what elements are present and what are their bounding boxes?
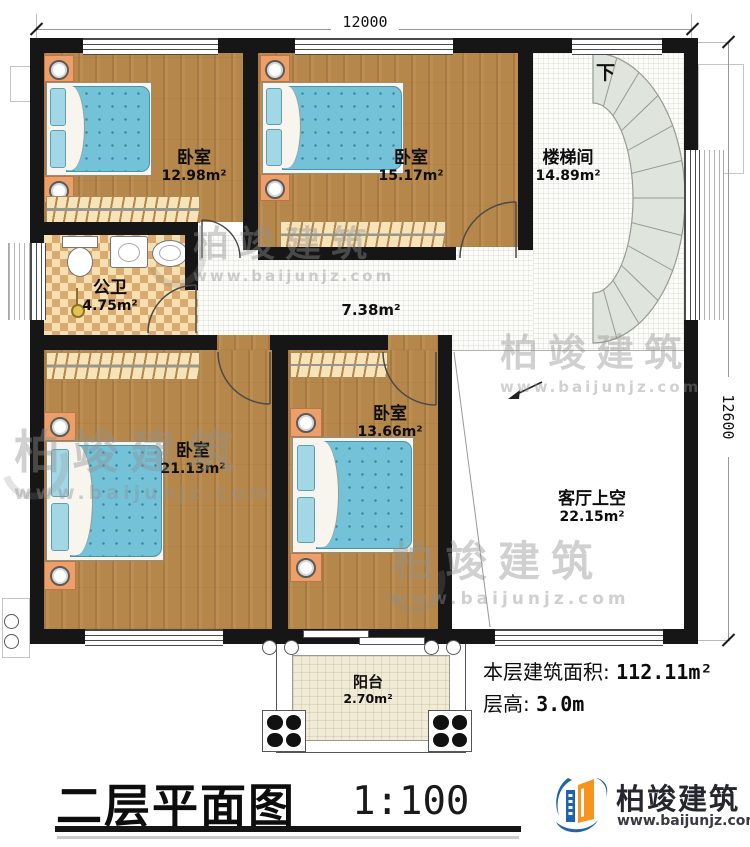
pillow xyxy=(51,503,69,551)
railing-baluster xyxy=(262,640,277,655)
floor-area-value: 112.11m² xyxy=(616,660,712,684)
stairwell-floor xyxy=(533,53,684,350)
room-area: 15.17m² xyxy=(351,168,471,185)
railing-baluster xyxy=(424,640,439,655)
nightstand xyxy=(290,408,322,437)
title-underline xyxy=(55,826,521,832)
room-label-balcony: 阳台 2.70m² xyxy=(308,674,428,706)
lamp-icon xyxy=(49,60,69,80)
extension-line xyxy=(691,14,692,38)
company-website: www.baijunjz.com xyxy=(617,813,750,829)
window xyxy=(684,150,700,320)
room-label-bedroom-bm: 卧室 13.66m² xyxy=(330,404,450,441)
right-dimension-label: 12600 xyxy=(719,377,737,457)
room-area: 7.38m² xyxy=(341,302,401,320)
column-icon xyxy=(4,614,19,629)
window xyxy=(295,38,453,55)
washer-drum-icon xyxy=(118,243,140,262)
pillow xyxy=(266,129,282,166)
room-label-corridor: 7.38m² xyxy=(341,302,401,320)
watermark: 柏竣建筑 www.baijunjz.com xyxy=(500,330,701,396)
room-name: 卧室 xyxy=(351,148,471,168)
top-dimension-label: 12000 xyxy=(331,13,399,31)
lamp-icon xyxy=(265,60,285,80)
pillow xyxy=(266,88,282,125)
drawing-scale: 1:100 xyxy=(352,779,469,824)
nightstand xyxy=(260,174,290,201)
bay-window xyxy=(698,150,724,320)
nightstand xyxy=(44,55,74,82)
railing-post xyxy=(262,710,306,752)
floor-height-note: 层高: 3.0m xyxy=(483,688,584,717)
title-underline-thin xyxy=(57,836,519,839)
lamp-icon xyxy=(296,558,316,578)
doorway-floor xyxy=(217,335,272,350)
column-icon xyxy=(4,634,19,649)
floor-plan: 12000 12600 下 xyxy=(0,0,750,847)
doorway-floor xyxy=(386,335,438,350)
room-area: 14.89m² xyxy=(508,168,628,185)
nightstand xyxy=(260,55,290,82)
room-name: 卧室 xyxy=(134,148,254,168)
watermark-company: 柏竣建筑 xyxy=(500,330,701,378)
room-area: 12.98m² xyxy=(134,168,254,185)
floor-height-label: 层高: xyxy=(483,692,530,716)
toilet-icon xyxy=(67,247,93,277)
room-label-bathroom: 公卫 4.75m² xyxy=(50,278,170,315)
room-name: 阳台 xyxy=(308,674,428,692)
room-name: 卧室 xyxy=(330,404,450,424)
watermark-company: 柏竣建筑 xyxy=(193,222,394,267)
bay-window xyxy=(8,243,32,320)
lamp-icon xyxy=(265,179,285,199)
window xyxy=(85,629,223,646)
pillow xyxy=(297,497,315,543)
floor-height-value: 3.0m xyxy=(536,692,584,716)
wardrobe xyxy=(46,352,200,380)
watermark-url: www.baijunjz.com xyxy=(500,378,701,397)
room-area: 4.75m² xyxy=(50,298,170,315)
railing-baluster xyxy=(446,640,461,655)
nightstand xyxy=(290,553,322,582)
lamp-icon xyxy=(296,413,316,433)
wall xyxy=(30,335,198,350)
wall xyxy=(272,350,288,629)
company-logo-icon xyxy=(552,772,610,834)
room-name: 公卫 xyxy=(50,278,170,298)
window xyxy=(30,243,46,320)
stair-down-label: 下 xyxy=(596,58,632,80)
window xyxy=(495,629,663,646)
room-label-bedroom-tl: 卧室 12.98m² xyxy=(134,148,254,185)
pillow xyxy=(50,130,66,168)
floor-area-label: 本层建筑面积: xyxy=(483,660,610,684)
company-name: 柏竣建筑 xyxy=(616,776,740,818)
wardrobe xyxy=(290,352,388,378)
exterior-outline xyxy=(2,598,30,658)
room-area: 2.70m² xyxy=(308,692,428,707)
window xyxy=(572,38,662,55)
nightstand xyxy=(44,561,76,590)
pillow xyxy=(50,88,66,126)
room-name: 客厅上空 xyxy=(532,489,652,509)
room-name: 楼梯间 xyxy=(508,148,628,168)
watermark: 柏竣建筑 www.baijunjz.com xyxy=(193,222,394,286)
sliding-door-panel xyxy=(359,637,425,645)
pillow xyxy=(297,445,315,491)
room-label-living-void: 客厅上空 22.15m² xyxy=(532,489,652,526)
wall xyxy=(198,335,217,350)
room-label-bedroom-tm: 卧室 15.17m² xyxy=(351,148,471,185)
watermark-url: www.baijunjz.com xyxy=(193,267,394,286)
railing-post xyxy=(428,710,472,752)
floor-area-note: 本层建筑面积: 112.11m² xyxy=(483,656,712,685)
wardrobe xyxy=(46,196,200,223)
railing-baluster xyxy=(284,640,299,655)
room-label-stairwell: 楼梯间 14.89m² xyxy=(508,148,628,185)
right-dimension-line xyxy=(728,42,729,641)
window xyxy=(83,38,218,55)
lamp-icon xyxy=(50,566,70,586)
wall xyxy=(270,335,388,350)
room-area: 22.15m² xyxy=(532,509,652,526)
room-area: 13.66m² xyxy=(330,424,450,441)
